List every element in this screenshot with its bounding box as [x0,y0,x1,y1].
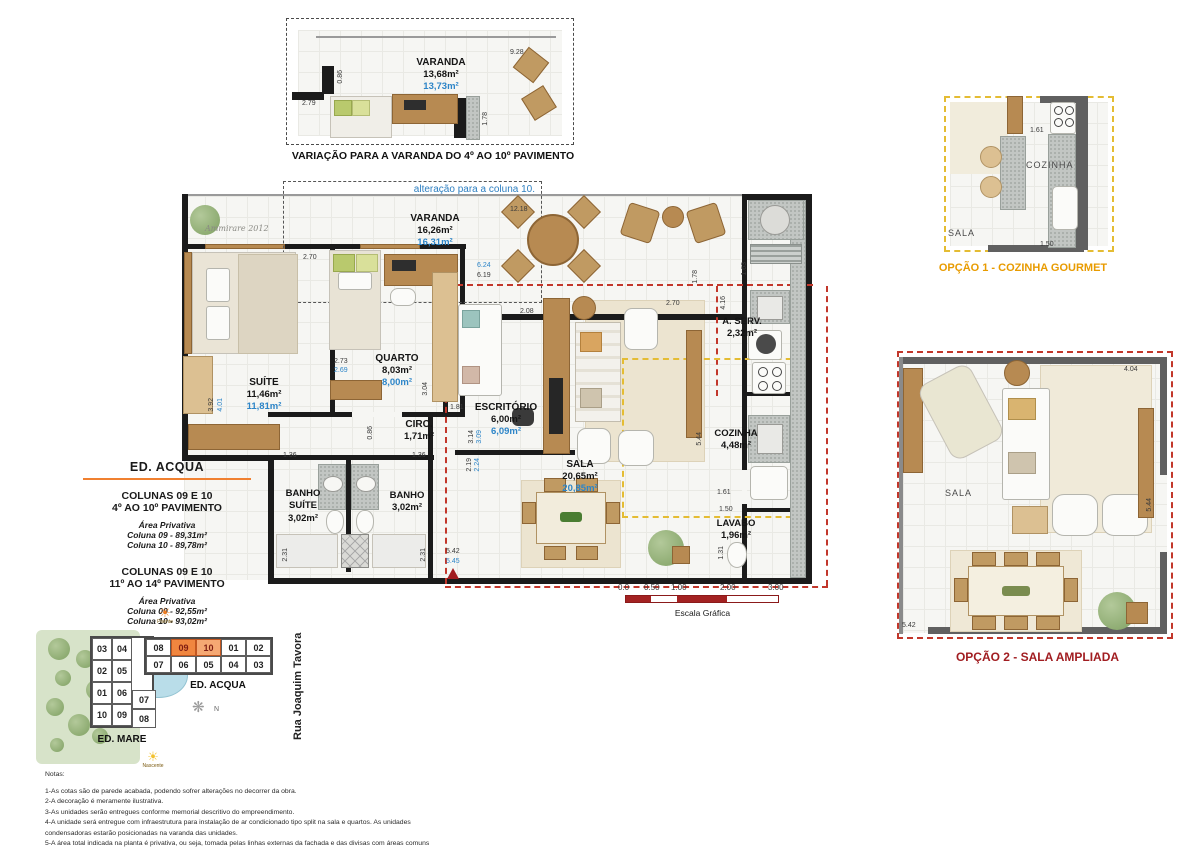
pillow-icon [462,310,480,328]
fridge-icon [750,466,788,500]
wall [1160,357,1167,475]
scale-segment [651,596,677,602]
scale-tick-label: 1.00 [671,584,687,592]
scale-bar-title: Escala Gráfica [640,608,765,618]
compass-icon: ❋ [192,698,205,716]
sun-nascente-icon: ☀Nascente [138,750,168,769]
pillow-icon [356,254,378,272]
entrance-arrow-icon [447,568,459,579]
unit-cell: 08 [132,709,156,728]
notes-block: Notas: 1-As cotas são de parede acabada,… [45,770,605,849]
centerpiece-icon [560,512,582,522]
wall [1160,552,1167,634]
scale-tick-label: 0.0 [618,584,629,592]
dim-label: 3.04 [422,382,429,396]
sideboard-icon [686,330,702,438]
option1-sala-label: SALA [948,228,975,238]
armchair-icon [618,430,654,466]
dim-label: 3.14 [468,430,475,444]
dim-label: 5.44 [1146,498,1153,512]
dim-label: 1.50 [719,506,733,513]
note-line: 5-A área total indicada na planta é priv… [45,839,605,849]
dim-label: 0.86 [367,426,374,440]
wall [322,66,334,94]
note-line: 3-As unidades serão entregues conforme m… [45,808,605,819]
option2-sala-label: SALA [945,488,972,498]
bed-headboard [184,252,192,354]
chair-icon [1004,552,1028,566]
side-table-icon [662,206,684,228]
dim-label: 0.86 [337,70,344,84]
site-label-mare: ED. MARE [82,734,162,745]
unit-cell-highlight-09: 09 [171,639,196,656]
unit-cell: 03 [92,638,112,660]
room-label-varanda: VARANDA 16,26m² 16,31m² [390,212,480,250]
sun-poente-icon: ☀Poente [150,606,180,625]
basin-icon [356,476,376,492]
chair-icon [972,552,996,566]
dim-label: 12.18 [510,206,528,213]
street-label: Rua Joaquim Tavora [292,630,304,740]
room-label-banho: BANHO 3,02m² [380,490,434,515]
room-label-cozinha: COZINHA 4,48m² [697,428,775,453]
unit-boundary-dashed-right [826,286,828,586]
stool-icon [980,176,1002,198]
unit-cell: 03 [246,656,271,673]
dim-label: 6.19 [477,272,491,279]
unit-cell: 01 [221,639,246,656]
info-block: ED. ACQUA COLUNAS 09 E 10 4º AO 10º PAVI… [72,460,262,626]
dim-label: 1.61 [1030,127,1044,134]
tank-sink-icon [760,205,790,235]
chair-icon [522,502,536,524]
toilet-icon [326,510,344,534]
dim-label: 5.42 [446,548,460,555]
tree-icon [46,698,64,716]
variant-wardrobe [466,96,480,140]
info-title-rule [83,478,251,480]
info-section-1: COLUNAS 09 E 10 4º AO 10º PAVIMENTO Área… [72,490,262,550]
burner-icon [772,381,782,391]
chair-icon [390,288,416,306]
room-label-varanda-variant: VARANDA 13,68m² 13,73m² [395,56,487,94]
dim-label: 5.45 [446,558,460,565]
toilet-icon [727,542,747,568]
dim-label: 9.28 [510,49,524,56]
shaft-icon [341,534,369,568]
option2-caption: OPÇÃO 2 - SALA AMPLIADA [925,650,1150,664]
scale-bar [625,595,779,603]
unit-cell: 06 [112,682,132,704]
dim-label: 1.78 [482,112,489,126]
dim-label: 2.19 [466,458,473,472]
island-counter-icon [1000,136,1026,210]
dim-label: 5.44 [696,432,703,446]
variant-plan-caption: VARIAÇÃO PARA A VARANDA DO 4º AO 10º PAV… [288,150,578,162]
unit-cell: 02 [246,639,271,656]
burner-icon [758,381,768,391]
dim-label: 1.36 [412,452,426,459]
scale-segment [626,596,651,602]
dim-label: 2.79 [302,100,316,107]
blanket [238,254,298,354]
stool-icon [980,146,1002,168]
tree-icon [50,738,64,752]
pillow-icon [1008,398,1036,420]
cabinet-icon [1007,96,1023,134]
note-line: 1-As cotas são de parede acabada, podend… [45,787,605,798]
dim-label: 4.16 [720,296,727,310]
floorplan-sheet: VARANDA 13,68m² 13,73m² 9.28 0.86 2.79 1… [0,0,1200,849]
scale-segment [727,596,778,602]
room-label-lavabo: LAVABO 1,96m² [697,518,775,543]
burner-icon [758,367,768,377]
cabinet-icon [903,368,923,473]
pillow-icon [338,272,372,290]
burner-icon [772,367,782,377]
window-icon [205,244,285,249]
wall [1076,100,1088,250]
laptop-icon [392,260,416,271]
door-opening [352,412,402,417]
pillow-icon [1008,452,1036,474]
dim-label: 1.61 [717,489,731,496]
round-table-icon [527,214,579,266]
pillow-icon [352,100,370,116]
chair-icon [544,546,566,560]
unit-boundary-dashed-top [447,284,813,286]
dim-label: 1.63 [741,262,748,276]
wall [292,92,324,100]
note-line: condensadoras estarão posicionadas na va… [45,829,605,840]
dim-label: 2.70 [666,300,680,307]
dim-label: 4.01 [217,398,224,412]
dim-label: 2.73 [334,358,348,365]
pillow-icon [333,254,355,272]
unit-cell: 04 [112,638,132,660]
burner-icon [1065,118,1074,127]
dim-label: 4.04 [1124,366,1138,373]
burner-icon [1065,106,1074,115]
coffee-table-icon [1012,506,1048,534]
fridge-icon [1052,186,1078,230]
toilet-icon [356,510,374,534]
wall [806,194,812,582]
dim-label: 1.36 [283,452,297,459]
dim-label: 2.31 [282,548,289,562]
room-label-circ: CIRC. 1,71m² [388,418,450,443]
scale-tick-label: 0.50 [644,584,660,592]
unit-cell: 10 [92,704,112,726]
dim-label: 1.31 [718,546,725,560]
plant-pot-icon [672,546,690,564]
wall [268,455,274,584]
chair-icon [954,578,968,602]
info-title: ED. ACQUA [72,460,262,474]
pillow-icon [334,100,352,116]
unit-cell: 07 [146,656,171,673]
chair-icon [1036,552,1060,566]
tree-icon [48,638,70,660]
notes-title: Notas: [45,770,605,781]
room-label-aserv: A. SERV. 2,32m² [702,316,782,341]
unit-cell: 06 [171,656,196,673]
dim-label: 2.31 [420,548,427,562]
burner-icon [1054,118,1063,127]
dim-label: 2.70 [303,254,317,261]
option1-cozinha-label: COZINHA [1026,160,1074,170]
pillow-icon [580,332,602,352]
wall [742,194,747,320]
unit-cell: 05 [196,656,221,673]
site-label-acqua: ED. ACQUA [168,680,268,691]
stove-icon [752,362,786,394]
unit-cell: 01 [92,682,112,704]
centerpiece-icon [1002,586,1030,596]
room-label-banho-suite: BANHO SUÍTE 3,02m² [280,488,326,525]
dim-label: 1.78 [692,270,699,284]
scale-segment [677,596,727,602]
dresser-icon [188,424,280,450]
room-label-suite: SUÍTE 11,46m² 11,81m² [219,376,309,414]
dim-label: 3.92 [208,398,215,412]
plant-pot-icon [1126,602,1148,624]
tree-icon [55,670,71,686]
variant-railing [316,36,556,38]
chair-icon [1004,616,1028,630]
wall [903,357,1167,364]
shower-floor [372,534,426,568]
unit-cell: 08 [146,639,171,656]
scale-tick-label: 2.00 [720,584,736,592]
dim-label: 5.42 [902,622,916,629]
chair-icon [1036,616,1060,630]
armchair-icon [624,308,658,350]
chair-icon [1064,578,1078,602]
pillow-icon [206,268,230,302]
armchair-icon [1052,494,1098,536]
dim-label: 3.09 [476,430,483,444]
basin-icon [323,476,343,492]
pillow-icon [580,388,602,408]
unit-cell-highlight-10: 10 [196,639,221,656]
dim-label: 1.81 [450,404,464,411]
burner-icon [1054,106,1063,115]
note-line: 2-A decoração é meramente ilustrativa. [45,797,605,808]
chair-icon [576,546,598,560]
unit-cell: 02 [92,660,112,682]
scale-tick-label: 3.00 [768,584,784,592]
option1-caption: OPÇÃO 1 - COZINHA GOURMET [913,262,1133,274]
dim-label: 6.24 [477,262,491,269]
dim-label: 2.24 [474,458,481,472]
signature: Ammirare 2012 [205,224,269,233]
chair-icon [606,502,620,524]
round-table-icon [572,296,596,320]
tree-icon [68,714,90,736]
dim-label: 2.69 [334,367,348,374]
dim-label: 1.50 [1040,241,1054,248]
unit-cell: 05 [112,660,132,682]
pillow-icon [462,366,480,384]
compass-north-label: N [214,706,219,713]
dim-label: 2.08 [520,308,534,315]
room-label-sala: SALA 20,65m² 20,85m² [540,458,620,496]
unit-cell: 07 [132,690,156,709]
alteration-note: alteração para a coluna 10. [330,184,535,195]
side-table-icon [1004,360,1030,386]
chair-icon [972,616,996,630]
pillow-icon [206,306,230,340]
heater-icon [750,244,802,264]
unit-cell: 09 [112,704,132,726]
note-line: 4-A unidade será entregue com infraestru… [45,818,605,829]
unit-cell: 04 [221,656,246,673]
laptop-icon [404,100,426,110]
